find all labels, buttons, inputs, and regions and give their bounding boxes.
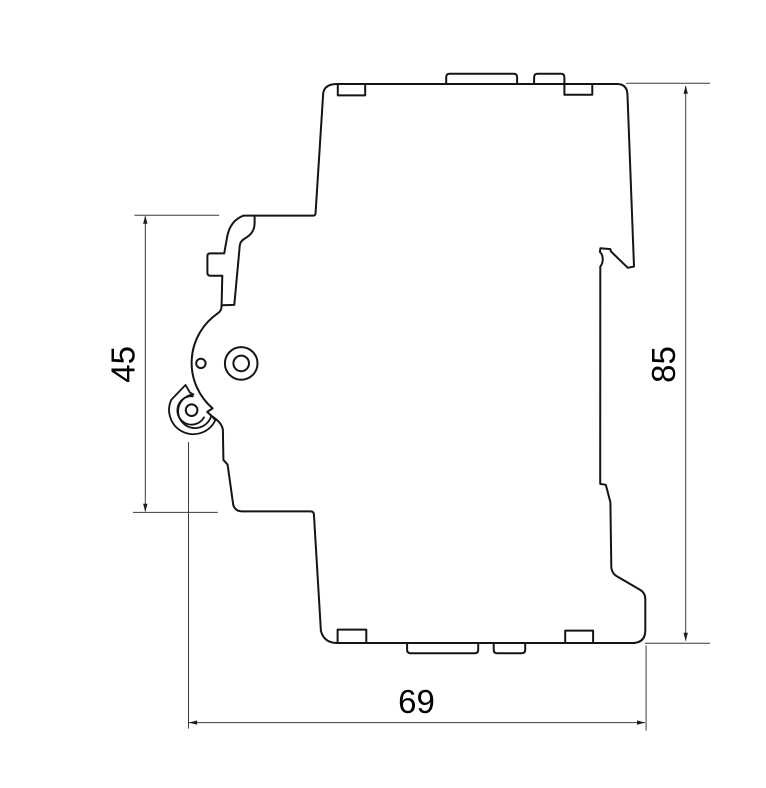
svg-text:69: 69 [398, 683, 435, 720]
svg-text:85: 85 [645, 346, 682, 383]
svg-text:45: 45 [105, 346, 142, 383]
